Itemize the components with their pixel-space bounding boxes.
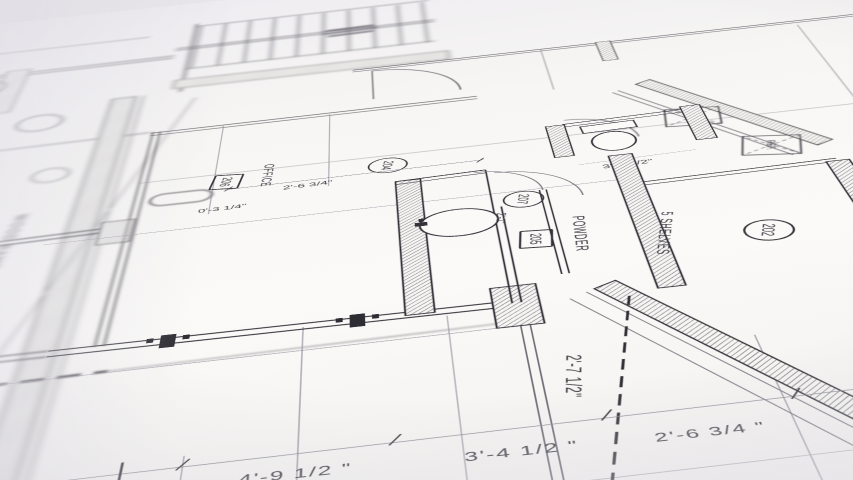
toilet-left-hatched-wall bbox=[545, 125, 574, 158]
grid-line-v1 bbox=[540, 49, 553, 89]
far-hatched-stub bbox=[595, 41, 618, 61]
office-fixture-shape bbox=[148, 189, 212, 207]
window-wall bbox=[45, 295, 526, 360]
blurred-far-region: WOOD RAMP bbox=[0, 0, 536, 480]
note-text-smudge bbox=[322, 24, 378, 38]
powder-room: POWDER 205 bbox=[473, 154, 685, 306]
grid-line-far bbox=[139, 82, 853, 183]
floor-plan-sheet: WOOD RAMP 4 " bbox=[0, 0, 853, 480]
closet-right-hatched-wall bbox=[826, 159, 853, 285]
appliance-label-ref-2: REF. bbox=[763, 140, 776, 150]
mullion-1 bbox=[158, 334, 176, 349]
door-leaf-top bbox=[372, 71, 373, 99]
tag-circle-202-label: 202 bbox=[757, 224, 778, 236]
mullion-2 bbox=[349, 313, 365, 327]
refrigerator-2: REF. bbox=[742, 135, 801, 156]
centerline-symbol-c: C bbox=[118, 476, 146, 480]
kitchen-hatched-wall bbox=[634, 65, 835, 161]
room-label-powder: POWDER bbox=[568, 215, 592, 252]
dimension-powder-depth: 2'-7 1/2" bbox=[560, 354, 585, 398]
far-left-walls bbox=[0, 34, 179, 171]
room-label-office: OFFICE bbox=[256, 164, 276, 188]
tag-box-206-label: 206 bbox=[215, 177, 234, 187]
dimension-office-width: 2'-6 3/4" bbox=[282, 179, 332, 191]
perspective-wrapper: WOOD RAMP 4 " bbox=[0, 0, 853, 480]
far-left-hatched-wall bbox=[0, 69, 30, 115]
dimension-bottom-1: 4'-9 1/2 " bbox=[237, 461, 352, 480]
blurred-tag-circle-2 bbox=[12, 113, 65, 134]
blurred-mid-region: 4 " bbox=[0, 99, 525, 480]
wall-t-junction bbox=[489, 284, 544, 329]
dimension-bottom-2: 3'-4 1/2 " bbox=[463, 438, 580, 464]
sink-fixture bbox=[418, 205, 500, 240]
bottom-dimension-row: C L 4'-9 1/2 " 3'-4 1/2 " 2'-6 3/4 " 3' bbox=[24, 369, 853, 480]
dimension-bottom-3: 2'-6 3/4 " bbox=[652, 419, 768, 444]
blueprint-photo: WOOD RAMP 4 " bbox=[0, 0, 853, 480]
bathroom-door-arc bbox=[494, 164, 583, 203]
left-hatched-wall bbox=[0, 97, 135, 480]
kitchen-far-region: REF. REF. 12 3 3 bbox=[123, 3, 853, 232]
grid-line-v2 bbox=[797, 25, 853, 131]
tag-box-206: 206 bbox=[209, 174, 243, 190]
dimension-sink-width: 2'-1" bbox=[493, 212, 509, 224]
floor-plan-drawing: WOOD RAMP 4 " bbox=[0, 0, 853, 480]
door-arc-top bbox=[372, 62, 461, 99]
bathroom-left-hatched-wall bbox=[395, 179, 434, 316]
centerline-axis bbox=[93, 463, 122, 480]
blurred-tag-circle-3 bbox=[28, 166, 71, 184]
tag-box-205-label: 205 bbox=[526, 233, 544, 245]
tag-box-205: 205 bbox=[519, 230, 551, 249]
toilet-fixture bbox=[579, 120, 636, 133]
tag-circle-207-label: 207 bbox=[513, 194, 532, 205]
dimension-office-offset: 0'-3 1/4" bbox=[197, 203, 246, 215]
office-top-wall bbox=[149, 96, 477, 136]
tag-circle-204-label: 204 bbox=[377, 161, 396, 171]
